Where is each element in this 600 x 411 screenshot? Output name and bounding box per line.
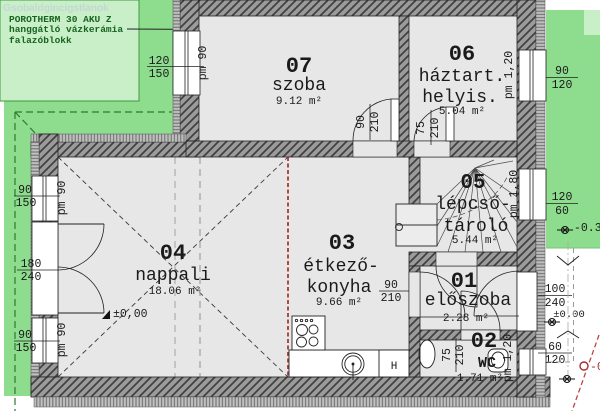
svg-text:03: 03 <box>329 231 355 256</box>
svg-text:1.71 m²: 1.71 m² <box>457 373 503 385</box>
svg-text:tároló: tároló <box>444 217 509 237</box>
svg-text:pm 1,80: pm 1,80 <box>508 170 521 218</box>
svg-text:WC: WC <box>478 355 496 372</box>
svg-text:90: 90 <box>355 115 368 129</box>
svg-text:150: 150 <box>16 197 37 210</box>
svg-text:05: 05 <box>460 172 485 195</box>
svg-text:pm 90: pm 90 <box>56 181 69 216</box>
svg-text:150: 150 <box>149 68 170 81</box>
svg-text:2.28 m²: 2.28 m² <box>443 313 489 325</box>
svg-text:falazóblokk: falazóblokk <box>9 35 72 46</box>
svg-text:5.44 m²: 5.44 m² <box>452 235 498 247</box>
svg-text:90: 90 <box>18 184 32 197</box>
svg-text:nappali: nappali <box>135 266 211 286</box>
svg-text:75: 75 <box>415 121 428 135</box>
svg-text:120: 120 <box>149 55 170 68</box>
svg-text:5.04 m²: 5.04 m² <box>439 106 485 118</box>
svg-text:120: 120 <box>545 354 566 367</box>
svg-text:szoba: szoba <box>272 76 326 96</box>
svg-text:±0.00: ±0.00 <box>553 309 585 321</box>
svg-text:-0,: -0, <box>590 361 600 374</box>
svg-text:±0,00: ±0,00 <box>113 308 148 321</box>
svg-text:60: 60 <box>555 205 569 218</box>
svg-text:120: 120 <box>552 191 573 204</box>
svg-text:pm 1,20: pm 1,20 <box>502 334 515 382</box>
svg-text:02: 02 <box>471 329 497 354</box>
svg-text:-0.3: -0.3 <box>574 222 600 235</box>
svg-text:150: 150 <box>16 342 37 355</box>
svg-text:210: 210 <box>369 112 382 133</box>
svg-text:100: 100 <box>545 283 566 296</box>
svg-text:9.12 m²: 9.12 m² <box>276 96 322 108</box>
svg-text:étkező-: étkező- <box>303 257 379 277</box>
svg-text:90: 90 <box>384 279 398 292</box>
svg-text:hanggátló vázkerámia: hanggátló vázkerámia <box>9 24 123 35</box>
svg-text:lépcső-: lépcső- <box>435 195 511 215</box>
svg-text:60: 60 <box>548 341 562 354</box>
svg-text:06: 06 <box>449 42 475 67</box>
svg-text:240: 240 <box>21 271 42 284</box>
svg-text:04: 04 <box>160 241 186 266</box>
svg-text:210: 210 <box>381 292 402 305</box>
svg-text:90: 90 <box>555 65 569 78</box>
svg-text:Gsobaldgincigstlanok: Gsobaldgincigstlanok <box>3 2 109 14</box>
svg-text:pm 1,20: pm 1,20 <box>503 51 516 99</box>
svg-text:pm 90: pm 90 <box>56 323 69 358</box>
svg-text:75: 75 <box>441 348 454 362</box>
svg-text:konyha: konyha <box>307 278 372 298</box>
svg-text:háztart.: háztart. <box>419 67 505 87</box>
svg-text:90: 90 <box>18 329 32 342</box>
svg-text:9.66 m²: 9.66 m² <box>316 297 362 309</box>
svg-text:18.06 m²: 18.06 m² <box>149 286 202 298</box>
svg-text:előszoba: előszoba <box>425 291 512 311</box>
svg-text:180: 180 <box>21 258 42 271</box>
svg-text:120: 120 <box>552 79 573 92</box>
svg-text:H: H <box>391 361 398 373</box>
svg-text:helyis.: helyis. <box>422 88 498 108</box>
svg-text:pm 90: pm 90 <box>197 46 210 81</box>
